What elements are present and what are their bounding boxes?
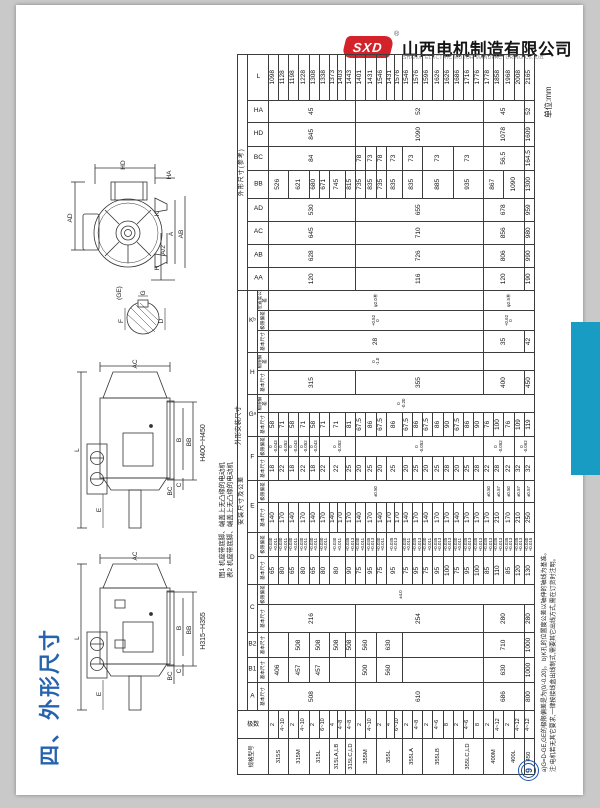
table-cell: 73 [386,146,402,170]
table-cell: 1090 [504,170,524,198]
dimension-table: 规格型号极数安装尺寸及公差外形尺寸(参考)AB1B2CDEFGᵃHKᵇAAABA… [237,55,535,775]
table-cell: 86 [366,413,376,437]
dim-label-g: G [140,290,147,295]
table-cell: 基本尺寸 [258,658,269,683]
dim-label-ab: AB [178,230,185,239]
table-cell: 1576 [394,54,402,100]
table-cell: 80 [299,557,309,585]
table-cell: 170 [299,503,309,533]
table-cell: 2 [376,711,386,739]
table-cell: 1546 [376,54,386,100]
table-cell: 959 [524,198,534,221]
table-cell: 基本尺寸 [258,683,269,711]
table-cell: 170 [473,503,483,533]
table-cell: 119 [524,413,534,437]
table-cell: 1968 [504,54,514,100]
table-cell: 58 [269,413,279,437]
table-cell: 0 -0.052 [356,437,484,457]
table-cell: +0.030 +0.011 [309,533,319,557]
table-cell: 645 [269,221,356,244]
table-cell: 规格型号 [238,739,269,775]
table-cell [402,658,483,683]
table-cell [269,633,289,658]
table-cell: 1686 [453,54,463,100]
table-cell: 4~12 [524,711,534,739]
table-cell: 508 [309,633,329,658]
dim-label-c: C [176,668,183,673]
table-cell: 极限偏差 [258,311,269,331]
table-cell: 710 [356,221,484,244]
table-cell: 355M [356,739,376,775]
table-cell: 170 [366,503,376,533]
catalog-page-stage: SXD ® 山西电机制造有限公司 SHANXI ELECTRIC MOTOR M… [0,0,600,808]
table-cell: 4~8 [413,711,423,739]
table-cell: 1228 [299,54,309,100]
table-cell: 2 [356,711,366,739]
table-cell: 20 [453,457,463,481]
table-cell: 2 [309,711,319,739]
section-title: 四、外形尺寸 [34,580,64,766]
table-cell: 845 [269,122,356,146]
motor-side-view-h315-drawing: AC L E B BB C BC H315~H355 [55,552,235,720]
table-cell: 极限偏差 [258,533,269,557]
table-cell: 678 [484,198,525,221]
table-cell: 170 [433,503,443,533]
table-cell: 32 [514,457,524,481]
table-cell: 85 [484,557,494,585]
table-cell: 560 [376,658,402,683]
table-footnotes: a)G=D-GE,GE的极限偏差是为(0/-0.20)。 b)K孔的位置度公差以… [541,396,563,772]
table-cell: 极限偏差 [258,585,269,605]
table-cell: 4~6 [433,711,443,739]
table-cell: 457 [309,658,329,683]
table-cell: 4 [386,711,394,739]
table-cell: 560 [356,633,376,658]
table-cell: 140 [356,503,366,533]
table-cell: 75 [453,557,463,585]
table-cell: 71 [299,413,309,437]
table-cell: +0.035 +0.013 [473,533,483,557]
table-cell: 6~10 [394,711,402,739]
table-cell: 980 [524,221,534,244]
table-cell: 35 [484,331,525,353]
table-cell: 140 [269,503,279,533]
dim-label-bc: BC [167,671,174,680]
table-cell: 500 [356,658,376,683]
table-cell: 2 [269,711,279,739]
table-cell: +0.035 +0.013 [366,533,376,557]
table-cell: 170 [279,503,289,533]
table-cell: 254 [356,605,484,633]
table-cell: φ2.5Ⓜ [484,290,535,310]
table-cell: 140 [453,503,463,533]
table-cell: 2 [423,711,433,739]
table-cell: 1403 [338,54,346,100]
table-cell: 315LA,LB [329,739,345,775]
table-cell: 170 [463,503,473,533]
table-cell: 140 [289,503,299,533]
table-cell: 基本尺寸 [258,413,269,437]
footnote-a: a)G=D-GE,GE的极限偏差是为(0/-0.20)。 b)K孔的位置度公差以… [541,396,550,772]
table-cell: 710 [484,633,525,658]
table-cell: 1338 [319,54,329,100]
table-cell: 67.5 [423,413,433,437]
table-cell: 86 [413,413,423,437]
table-cell: +0.030 +0.011 [319,533,329,557]
table-cell: +0.030 +0.011 [376,533,386,557]
table-cell: 65 [289,557,299,585]
table-cell: 1000 [524,633,534,658]
table-cell: 315LC,LD [346,739,356,775]
table-cell: 1308 [309,54,319,100]
table-cell: F [248,437,258,481]
table-cell: 4~12 [494,711,504,739]
table-cell: 28 [443,457,453,481]
table-cell: 25 [433,457,443,481]
table-cell: 800 [524,683,534,711]
unit-label: 单位:mm [543,58,557,118]
table-cell: 25 [366,457,376,481]
page-number: 9 [524,768,534,773]
table-cell: 76 [504,413,514,437]
table-cell: 45 [484,100,525,122]
table-cell: ±0.57 [524,481,534,503]
table-cell: 815 [346,170,356,198]
table-cell: 22 [299,457,309,481]
table-cell: 4~8 [338,711,346,739]
table-cell: 130 [524,557,534,585]
table-cell: 1626 [443,54,453,100]
table-cell: 867 [484,170,504,198]
table-cell: 4 [329,711,337,739]
table-cell: ±0.50 [484,481,494,503]
table-cell: 400M [484,739,504,775]
table-cell: 基本尺寸 [258,503,269,533]
table-cell: 95 [366,557,376,585]
table-cell: 基本尺寸 [258,557,269,585]
table-cell: 75 [356,557,366,585]
table-cell: 1858 [494,54,504,100]
table-cell: 170 [338,503,346,533]
table-cell: AC [248,221,269,244]
table-cell: 1443 [346,54,356,100]
table-cell: 0 -0.052 [484,437,514,457]
dimension-table-grid: 规格型号极数安装尺寸及公差外形尺寸(参考)AB1B2CDEFGᵃHKᵇAAABA… [237,54,535,775]
dim-label-e: E [96,691,103,696]
table-cell: 355 [356,371,484,395]
table-cell: 52 [356,100,484,122]
table-cell: C [248,585,258,633]
table-cell: +0.030 +0.011 [279,533,289,557]
table-cell: 835 [402,170,422,198]
table-cell: +0.030 +0.011 [356,533,366,557]
dim-label-h: H [154,265,161,270]
dim-label-bb: BB [186,438,193,447]
table-cell: 170 [443,503,453,533]
table-cell: 457 [289,658,309,683]
table-cell: 4~12 [514,711,524,739]
table-cell: 2165 [524,54,534,100]
table-cell: 81 [346,413,356,437]
table-cell: 315L [309,739,329,775]
table-cell: 18 [269,457,279,481]
table-cell: 1098 [269,54,279,100]
table-cell: D [248,533,258,585]
table-cell: AD [248,198,269,221]
table-cell: 170 [319,503,329,533]
dim-label-bc: BC [167,486,174,495]
table-cell: 1596 [423,54,433,100]
footnote-order: 注:电机若无其它要求,一律按接线盒出线制式,需要其它出线方式,需在订货时注明。 [550,396,559,772]
table-cell: 250 [524,503,534,533]
table-cell: 140 [329,503,337,533]
table-cell: +0.035 +0.013 [514,533,524,557]
table-cell: +0.030 +0.011 [329,533,345,557]
table-cell: 22 [329,457,345,481]
table-cell: 655 [356,198,484,221]
table-cell: 109 [514,413,524,437]
table-cell: +0.035 +0.013 [413,533,423,557]
dim-label-l: L [74,636,81,640]
dim-label-a2: A/2 [160,245,167,255]
table-cell: AA [248,267,269,290]
table-cell: 1078 [484,122,525,146]
table-cell: Gᵃ [248,395,258,437]
table-cell: 140 [423,503,433,533]
page-number-badge: 9 [518,760,539,781]
table-cell: Kᵇ [248,290,258,352]
table-cell: 140 [309,503,319,533]
table-cell: 621 [289,170,309,198]
table-cell [402,633,483,658]
table-cell: 835 [366,170,376,198]
table-cell: 22 [504,457,514,481]
registered-trademark-icon: ® [394,31,399,38]
table-cell: 355LA [402,739,422,775]
table-cell: 86 [386,413,402,437]
table-cell: 315 [269,371,356,395]
table-cell: +0.035 +0.013 [504,533,514,557]
table-cell: 外形尺寸(参考) [238,54,248,290]
table-cell: ±0.57 [514,481,524,503]
dim-label-ac: AC [132,359,139,368]
chapter-edge-tab [571,322,600,475]
table-cell: 71 [279,413,289,437]
table-cell: 885 [423,170,453,198]
table-cell: 18 [309,457,319,481]
dim-label-ge: (GE) [116,286,123,300]
table-cell: 22 [484,457,494,481]
table-cell: 170 [346,503,356,533]
table-cell: 安装尺寸及公差 [238,290,248,710]
table-cell: 1090 [356,122,484,146]
table-cell: 65 [309,557,319,585]
table-cell: 73 [366,146,376,170]
table-cell: 508 [289,633,309,658]
table-cell: 95 [433,557,443,585]
table-cell: 355LB [423,739,453,775]
table-cell: 32 [524,457,534,481]
table-cell: +0.040 +0.015 [524,533,534,557]
table-cell: ±0.50 [504,481,514,503]
table-cell: 25 [463,457,473,481]
table-cell: 2 [289,711,299,739]
table-cell: 686 [484,683,525,711]
table-cell: 1401 [356,54,366,100]
table-cell: 100 [443,557,453,585]
table-cell: 170 [484,503,494,533]
dim-label-c: C [176,482,183,487]
table-cell: 216 [269,605,356,633]
table-cell: ±0.57 [494,481,504,503]
table-cell: 75 [402,557,412,585]
table-cell: 76 [484,413,494,437]
table-cell: ±4.0 [269,585,535,605]
motor-side-view-h400-drawing: AC L E B BB C BC H400~H450 [55,358,235,558]
table-cell: 20 [423,457,433,481]
dim-label-f: F [118,319,125,323]
frame-range-label: H315~H355 [200,612,207,650]
table-cell [484,353,535,371]
table-cell: 726 [356,244,484,267]
table-cell: BB [248,170,269,198]
table-cell: 835 [386,170,402,198]
table-cell: 22 [279,457,289,481]
table-cell: 1778 [484,54,494,100]
table-cell: 190 [524,267,534,290]
table-cell: 210 [514,503,524,533]
table-cell: 4~6 [463,711,473,739]
table-cell: 628 [269,244,356,267]
dim-label-b: B [176,626,183,630]
table-cell: 170 [394,503,402,533]
table-cell: 610 [356,683,484,711]
table-cell: 1576 [413,54,423,100]
table-cell: 0 -0.052 [279,437,289,457]
table-cell: 355L [376,739,402,775]
table-cell: 65 [269,557,279,585]
table-cell: 20 [402,457,412,481]
table-cell: 1431 [386,54,394,100]
table-cell: 680 [309,170,319,198]
dim-label-bb: BB [186,626,193,635]
table-cell: 85 [504,557,514,585]
dim-label-l: L [74,448,81,452]
table-cell: 140 [376,503,386,533]
table-cell: 630 [484,658,525,683]
table-cell: 71 [329,413,345,437]
table-cell: 2 [504,711,514,739]
table-cell: 935 [453,170,483,198]
table-cell: +0.035 +0.013 [484,533,494,557]
table-cell: 2 [484,711,494,739]
table-cell: 406 [269,658,289,683]
table-cell: 25 [386,457,402,481]
dim-label-d: D [158,318,165,323]
table-cell: 1716 [463,54,473,100]
table-cell: +0.030 +0.011 [423,533,433,557]
table-cell: +0.030 +0.011 [299,533,309,557]
brand-logo-text: SXD [352,40,383,55]
table-cell: 80 [319,557,329,585]
table-cell: A [248,683,258,711]
table-cell: 56.5 [484,146,525,170]
table-cell: 6~10 [319,711,329,739]
table-cell: BC [248,146,269,170]
table-cell: 100 [494,413,504,437]
table-cell: +0.52 0 [269,311,484,331]
table-cell: 1373 [329,54,337,100]
table-cell: B2 [248,633,258,658]
dim-label-e: E [96,507,103,512]
table-cell: 508 [346,633,356,658]
table-cell: 位置度公差 [258,290,269,310]
table-cell: 25 [413,457,423,481]
table-cell: 80 [329,557,345,585]
dim-label-a: A [168,231,175,236]
dim-label-hd: HD [120,160,127,170]
table-cell: 0 -0.043 [289,437,299,457]
table-cell: 1300 [524,170,534,198]
table-cell: 1546 [402,54,412,100]
table-cell: 67.5 [402,413,412,437]
table-cell: 1198 [289,54,299,100]
table-cell: 95 [386,557,402,585]
table-cell: 508 [269,683,356,711]
table-cell: 4~10 [366,711,376,739]
table-cell: 1609 [524,122,534,146]
table-cell: 0 -0.043 [309,437,319,457]
table-cell: 86 [463,413,473,437]
dim-label-k: K [154,211,161,216]
table-cell: 735 [376,170,386,198]
table-cell: 25 [346,457,356,481]
table-cell: 735 [356,170,366,198]
table-cell: 8 [443,711,453,739]
table-cell [329,658,355,683]
figure-caption-line2: 表2 机座带底脚、端盖上无凸缘的电动机 [227,406,235,578]
table-cell: 73 [423,146,453,170]
table-cell: AB [248,244,269,267]
table-cell: 630 [376,633,402,658]
table-cell: 745 [329,170,345,198]
figure-caption-line1: 图1 机座带底脚、端盖上无凸缘的电动机 [219,406,227,578]
table-cell: 极限偏差 [258,395,269,413]
table-cell: 73 [453,146,483,170]
dim-label-b: B [176,438,183,442]
table-cell: 基本尺寸 [258,331,269,353]
table-cell: L [248,54,269,100]
table-cell: 基本尺寸 [258,633,269,658]
table-cell: 0 -0.052 [319,437,355,457]
frame-range-label: H400~H450 [200,424,207,462]
table-cell: 2 [402,711,412,739]
table-cell: 18 [289,457,299,481]
dim-label-ha: HA [166,170,173,180]
table-cell: 1776 [473,54,483,100]
table-cell: +0.035 +0.013 [463,533,473,557]
table-cell: 75 [376,557,386,585]
table-cell: 67.5 [453,413,463,437]
table-cell: 基本尺寸 [258,371,269,395]
table-cell: HD [248,122,269,146]
table-cell: 86 [433,413,443,437]
table-cell: 20 [356,457,366,481]
table-cell: 45 [269,100,356,122]
table-cell: E [248,481,258,533]
table-cell: ±0.50 [269,481,484,503]
table-cell: 315M [289,739,309,775]
